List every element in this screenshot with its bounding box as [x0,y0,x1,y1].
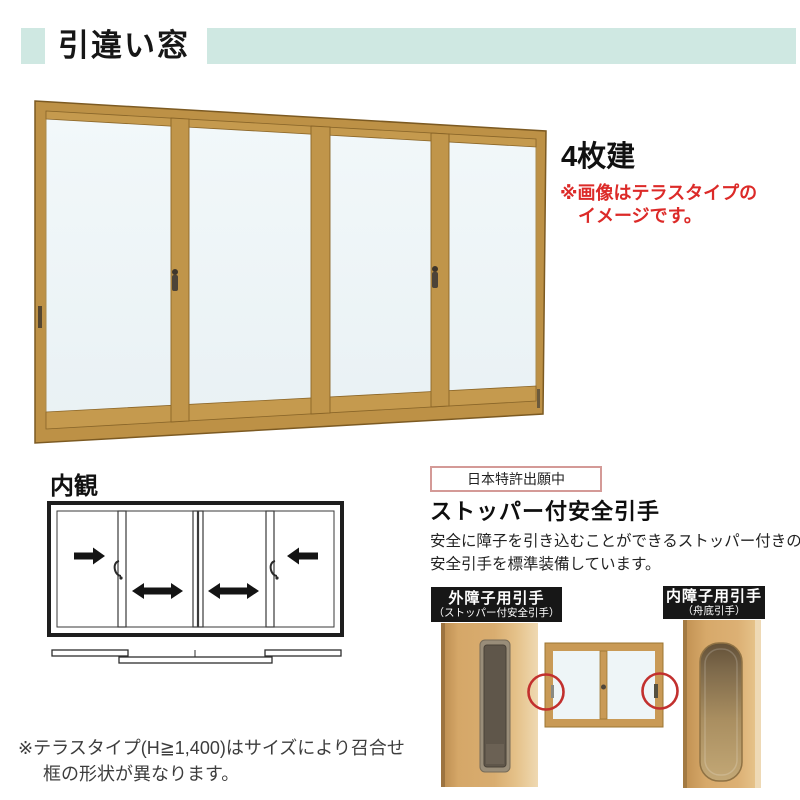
diagram-lock-dot-2 [275,576,278,579]
size-footnote-line1: ※テラスタイプ(H≧1,400)はサイズにより召合せ [18,735,405,761]
product-sheet: 引違い窓 4枚建 ※画像はテラスタイプの イメージです。 内観 日本特許出願中 … [0,0,800,800]
panel-count-label: 4枚建 [561,133,635,175]
outer-handle-wood-edge [441,623,445,787]
glass-panes [46,111,536,429]
inner-handle-wood-edge [683,620,687,788]
outer-handle-label-line1: 外障子用引手 [448,590,544,607]
outer-handle-label: 外障子用引手 （ストッパー付安全引手） [431,587,562,622]
interior-view-title: 内観 [50,466,98,501]
inner-handle-photo [683,620,761,788]
inner-handle-label-line2: （舟底引手） [683,605,746,618]
mini-window-left-pull [551,685,554,698]
crescent-lock-2 [432,272,438,288]
inner-handle-label-line1: 内障子用引手 [666,588,762,605]
diagram-lock-dot-1 [119,576,122,579]
left-frame-pull [38,306,42,328]
size-footnote: ※テラスタイプ(H≧1,400)はサイズにより召合せ 框の形状が異なります。 [18,735,405,787]
illustration-layer [0,0,800,800]
mini-window-illustration [529,643,678,727]
title-band-left-square [21,28,45,64]
patent-pending-badge: 日本特許出願中 [430,466,602,492]
interior-view-diagram [49,503,342,663]
inner-handle-label: 内障子用引手 （舟底引手） [663,586,765,619]
outer-handle-photo [441,623,538,787]
terrace-type-note: ※画像はテラスタイプの イメージです。 [560,182,757,228]
plan-bar-left [52,650,128,656]
outer-handle-stopper [486,744,504,764]
diagram-stile-1 [118,511,126,627]
feature-description-line2: 安全引手を標準装備しています。 [430,554,800,577]
page-title: 引違い窓 [58,28,190,64]
plan-bar-middle [119,657,272,663]
main-window-illustration [35,101,546,443]
title-band-right [207,28,796,64]
terrace-type-note-line1: ※画像はテラスタイプの [560,182,757,205]
diagram-stile-2b [199,511,204,627]
outer-handle-label-line2: （ストッパー付安全引手） [434,607,560,620]
plan-bar-right [265,650,341,656]
inner-handle-recess [700,643,742,781]
crescent-lock-2-knob [432,266,438,272]
feature-description-line1: 安全に障子を引き込むことができるストッパー付きの [430,531,800,554]
feature-heading: ストッパー付安全引手 [430,494,660,526]
meeting-stile-2 [311,126,330,414]
crescent-lock-1 [172,275,178,291]
inner-handle-wood-light-edge [755,620,761,788]
mini-window-lock-dot [601,685,606,690]
feature-description: 安全に障子を引き込むことができるストッパー付きの 安全引手を標準装備しています。 [430,531,800,576]
diagram-stile-2a [193,511,198,627]
terrace-type-note-line2: イメージです。 [560,205,757,228]
crescent-lock-1-knob [172,269,178,275]
mini-window-right-pull [654,684,658,698]
size-footnote-line2: 框の形状が異なります。 [18,761,405,787]
right-frame-pull [537,389,540,408]
